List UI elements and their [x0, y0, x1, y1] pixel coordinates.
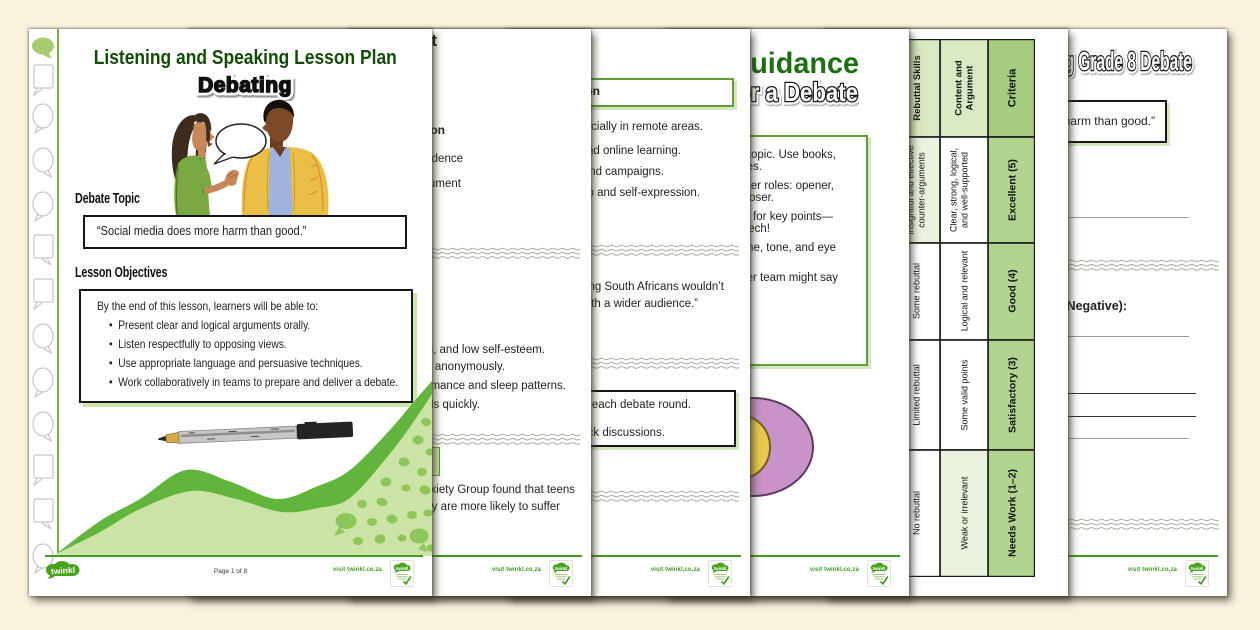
svg-text:twinkl: twinkl	[1191, 566, 1203, 571]
svg-text:Satisfactory (3): Satisfactory (3)	[1007, 357, 1019, 433]
svg-text:Needs Work (1–2): Needs Work (1–2)	[1007, 469, 1019, 557]
svg-text:Debating: Debating	[198, 74, 292, 97]
svg-text:twinkl: twinkl	[555, 566, 567, 571]
svg-text:twinkl: twinkl	[873, 566, 885, 571]
svg-text:Some valid points: Some valid points	[960, 359, 970, 431]
svg-text:Criteria: Criteria	[1007, 68, 1019, 107]
svg-text:Clear, strong, logical,: Clear, strong, logical,	[949, 148, 959, 232]
svg-text:counter-arguments: counter-arguments	[917, 152, 927, 228]
svg-text:twinkl: twinkl	[396, 566, 408, 571]
svg-text:Content and: Content and	[954, 60, 965, 116]
svg-text:and well-supported: and well-supported	[960, 152, 970, 228]
svg-text:Excellent (5): Excellent (5)	[1007, 159, 1019, 221]
svg-text:Argument: Argument	[965, 65, 976, 111]
svg-text:No rebuttal: No rebuttal	[912, 491, 922, 535]
svg-text:Some rebuttal: Some rebuttal	[912, 263, 922, 319]
svg-text:Logical and relevant: Logical and relevant	[960, 250, 970, 331]
svg-text:twinkl: twinkl	[714, 566, 726, 571]
svg-text:Good (4): Good (4)	[1007, 269, 1019, 312]
svg-text:Limited rebuttal: Limited rebuttal	[912, 364, 922, 426]
svg-text:Rebuttal Skills: Rebuttal Skills	[912, 55, 923, 120]
svg-text:Weak or irrelevant: Weak or irrelevant	[960, 476, 970, 549]
